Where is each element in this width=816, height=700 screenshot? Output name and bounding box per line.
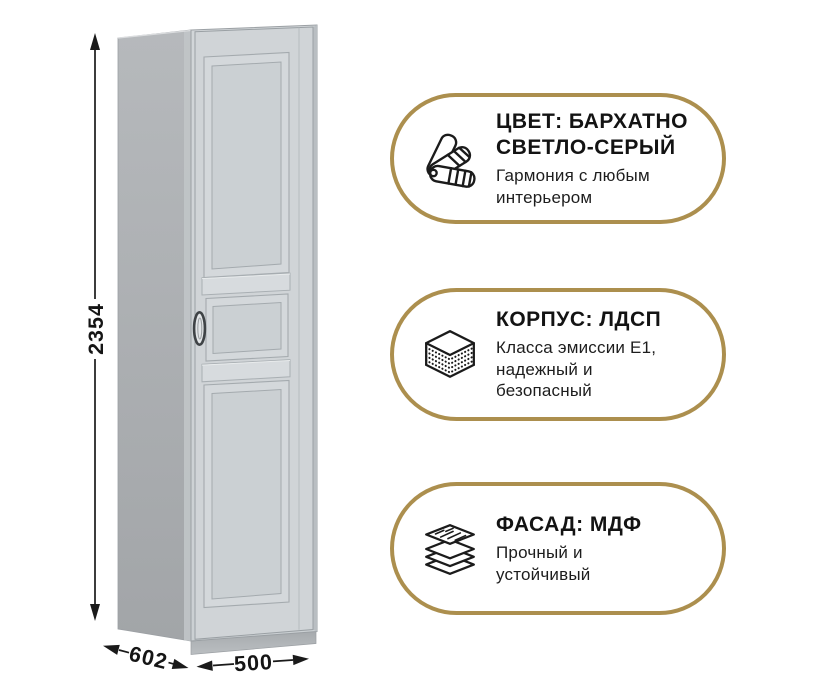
- mdf-sheets-icon: [421, 520, 479, 578]
- wardrobe-illustration: 2354 602 500: [0, 0, 380, 700]
- callout-facade-title: ФАСАД: МДФ: [496, 512, 642, 538]
- callout-body-material: КОРПУС: ЛДСП Класса эмиссии Е1, надежный…: [390, 288, 726, 421]
- callout-color-subtitle: Гармония с любым интерьером: [496, 165, 688, 208]
- wardrobe-side-panel: [118, 30, 191, 641]
- depth-dimension-label: 602: [127, 642, 170, 674]
- callout-facade-material: ФАСАД: МДФ Прочный и устойчивый: [390, 482, 726, 615]
- depth-dimension: 602: [102, 641, 190, 674]
- wardrobe-front: [191, 25, 317, 641]
- height-dimension: 2354: [84, 33, 108, 621]
- callout-body-title: КОРПУС: ЛДСП: [496, 307, 661, 333]
- height-dimension-label: 2354: [84, 303, 108, 355]
- width-dimension-label: 500: [233, 650, 273, 676]
- callout-color-title: ЦВЕТ: БАРХАТНО СВЕТЛО-СЕРЫЙ: [496, 109, 688, 161]
- callout-facade-subtitle: Прочный и устойчивый: [496, 542, 642, 585]
- chipboard-layers-icon: [421, 326, 479, 384]
- width-dimension: 500: [196, 650, 309, 676]
- callout-color: ЦВЕТ: БАРХАТНО СВЕТЛО-СЕРЫЙ Гармония с л…: [390, 93, 726, 224]
- color-fan-icon: [421, 130, 479, 188]
- door-handle: [194, 312, 205, 344]
- product-infographic: 2354 602 500: [0, 0, 816, 700]
- callout-body-subtitle: Класса эмиссии Е1, надежный и безопасный: [496, 337, 661, 401]
